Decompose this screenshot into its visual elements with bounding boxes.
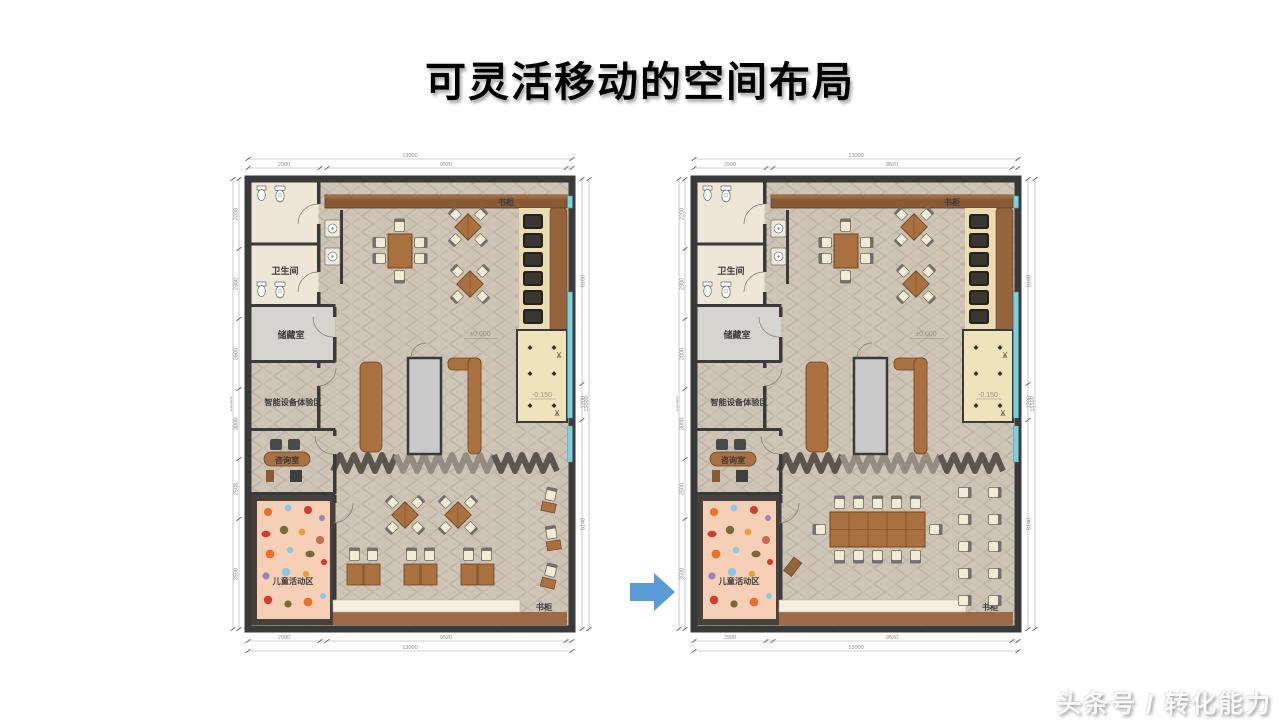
watermark: 头条号 / 转化能力: [1056, 684, 1272, 720]
slide-canvas: 可灵活移动的空间布局: [0, 0, 1280, 720]
floor-plan-before: [230, 152, 592, 672]
right-arrow-icon: [630, 573, 675, 611]
floor-plan-after: [676, 152, 1038, 672]
transform-arrow: [630, 572, 676, 612]
slide-title: 可灵活移动的空间布局: [0, 48, 1280, 108]
